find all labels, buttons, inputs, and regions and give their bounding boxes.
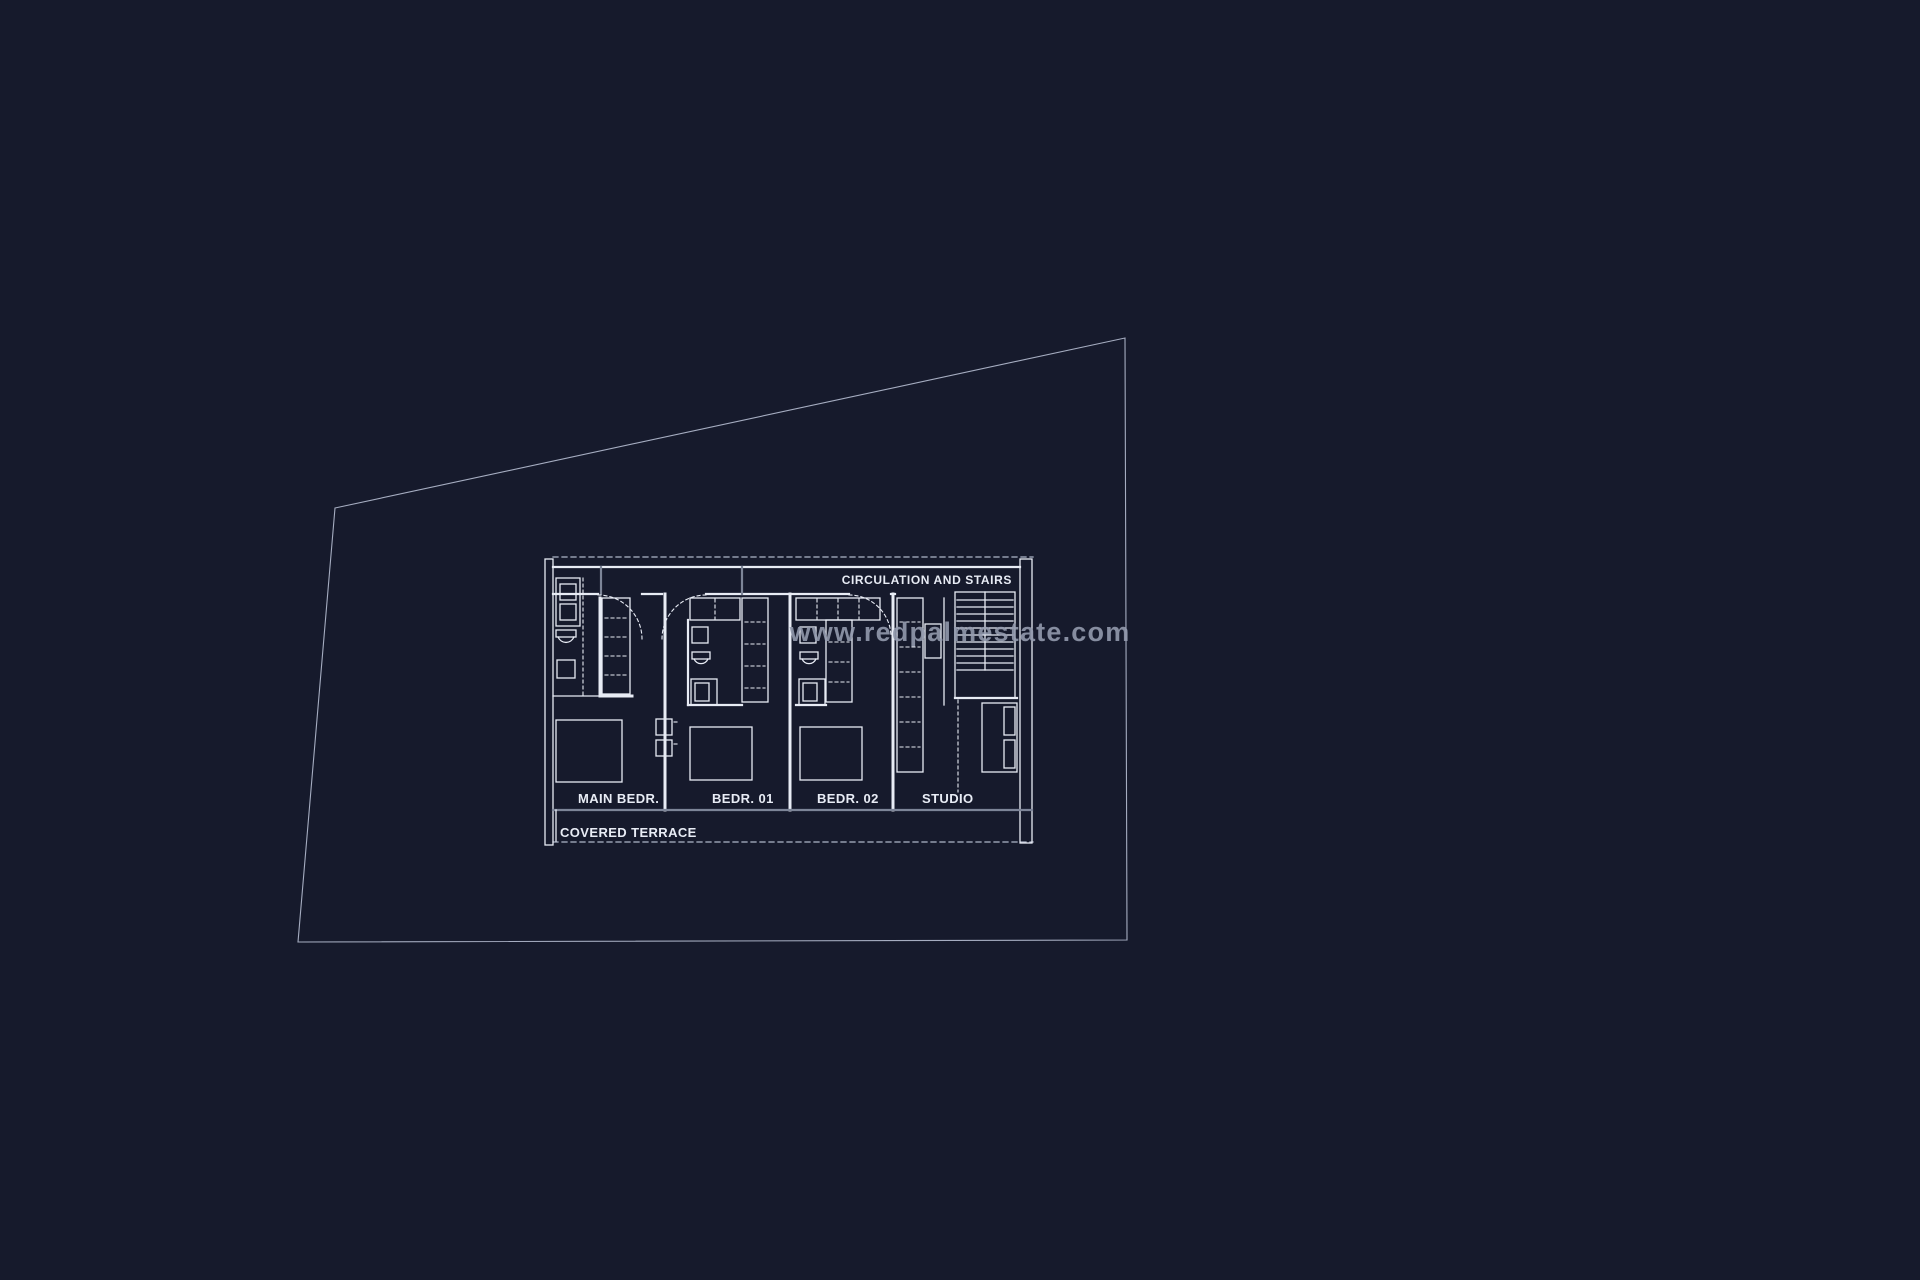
- room-main-bedroom: [553, 578, 678, 782]
- wardrobe-bedroom-1: [742, 598, 768, 702]
- bed-bedroom-2: [800, 727, 862, 780]
- label-bedroom-1: BEDR. 01: [712, 791, 774, 806]
- sink-icon: [692, 627, 708, 643]
- sink-icon: [560, 584, 576, 600]
- toilet-icon: [692, 652, 710, 664]
- shower-icon: [691, 679, 717, 705]
- shower-icon: [799, 679, 825, 705]
- bedside-units: [656, 719, 678, 756]
- toilet-icon: [800, 652, 818, 664]
- label-studio: STUDIO: [922, 791, 974, 806]
- watermark-text: www.redpalmestate.com: [789, 617, 1131, 647]
- label-bedroom-2: BEDR. 02: [817, 791, 879, 806]
- shower-icon: [557, 660, 575, 678]
- label-covered-terrace: COVERED TERRACE: [560, 825, 697, 840]
- blueprint-canvas: CIRCULATION AND STAIRS MAIN BEDR. BEDR. …: [0, 0, 1920, 1280]
- floor-plan: CIRCULATION AND STAIRS MAIN BEDR. BEDR. …: [545, 557, 1033, 845]
- bed-studio: [982, 703, 1017, 772]
- wall-pier-right: [1020, 559, 1032, 843]
- room-bedroom-1: [688, 598, 768, 780]
- sink-icon: [560, 604, 576, 620]
- label-main-bedroom: MAIN BEDR.: [578, 791, 659, 806]
- wall-pier-left: [545, 559, 553, 845]
- bed-main-bedroom: [556, 720, 622, 782]
- toilet-icon: [556, 630, 576, 642]
- label-circulation-and-stairs: CIRCULATION AND STAIRS: [842, 573, 1012, 587]
- bed-bedroom-1: [690, 727, 752, 780]
- door-arc-bedroom-1: [662, 595, 706, 639]
- door-arc-main-bedroom: [598, 595, 642, 639]
- wall-wardrobe-l: [600, 598, 632, 696]
- floor-plan-drawing: CIRCULATION AND STAIRS MAIN BEDR. BEDR. …: [0, 0, 1920, 1280]
- wardrobe-main-bedroom: [602, 598, 630, 694]
- closet-band-bedroom-1: [690, 598, 740, 620]
